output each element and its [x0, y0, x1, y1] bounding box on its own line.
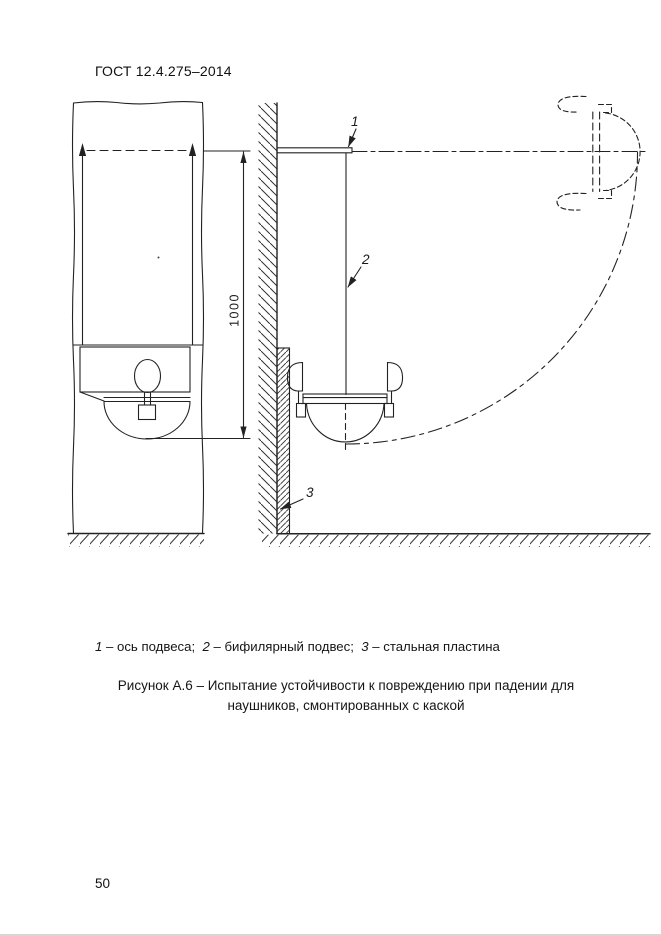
left-wire-arrow: [79, 143, 86, 156]
figure-caption: Рисунок А.6 – Испытание устойчивости к п…: [31, 676, 661, 716]
helmet-side-view: [287, 363, 402, 453]
right-wire-arrow: [189, 143, 196, 156]
helmet-dome-front: [104, 402, 190, 440]
figure-caption-line2: наушников, смонтированных с каской: [31, 696, 661, 716]
dimension-value: 1000: [228, 293, 242, 327]
legend-text-2: – бифилярный подвес;: [210, 639, 361, 654]
callout-2-label: 2: [361, 252, 370, 267]
figure-caption-line1: Рисунок А.6 – Испытание устойчивости к п…: [31, 676, 661, 696]
floor-hatch: [262, 535, 650, 547]
callout-1-label: 1: [351, 114, 359, 129]
figure-legend: 1 – ось подвеса; 2 – бифилярный подвес; …: [95, 639, 500, 654]
legend-text-1: – ось подвеса;: [102, 639, 202, 654]
legend-num-2: 2: [202, 639, 209, 654]
legend-num-3: 3: [361, 639, 368, 654]
helmet-raised-dashed: [557, 96, 640, 210]
earmuff-cup-right: [388, 363, 403, 392]
document-page: ГОСТ 12.4.275–2014: [0, 0, 661, 936]
wall-hatch: [259, 103, 278, 534]
speck: [158, 257, 160, 259]
callout-2-leader: [348, 267, 361, 287]
front-view: 1000: [68, 102, 250, 547]
legend-text-3: – стальная пластина: [369, 639, 500, 654]
figure-a6-diagram: 1000 1 2 3: [0, 0, 661, 936]
specimen-frame-outline: [73, 102, 204, 533]
swing-arc: [346, 152, 638, 444]
side-view: 1 2 3: [259, 96, 651, 547]
callout-3-label: 3: [306, 485, 314, 500]
page-number: 50: [95, 876, 110, 891]
brim-slant: [80, 392, 104, 401]
callout-1-leader: [349, 129, 357, 147]
earmuff-cup-front: [135, 360, 161, 393]
dimension-1000: 1000: [146, 151, 250, 439]
stem-block: [139, 405, 156, 420]
ground-hatch-left: [68, 535, 204, 547]
